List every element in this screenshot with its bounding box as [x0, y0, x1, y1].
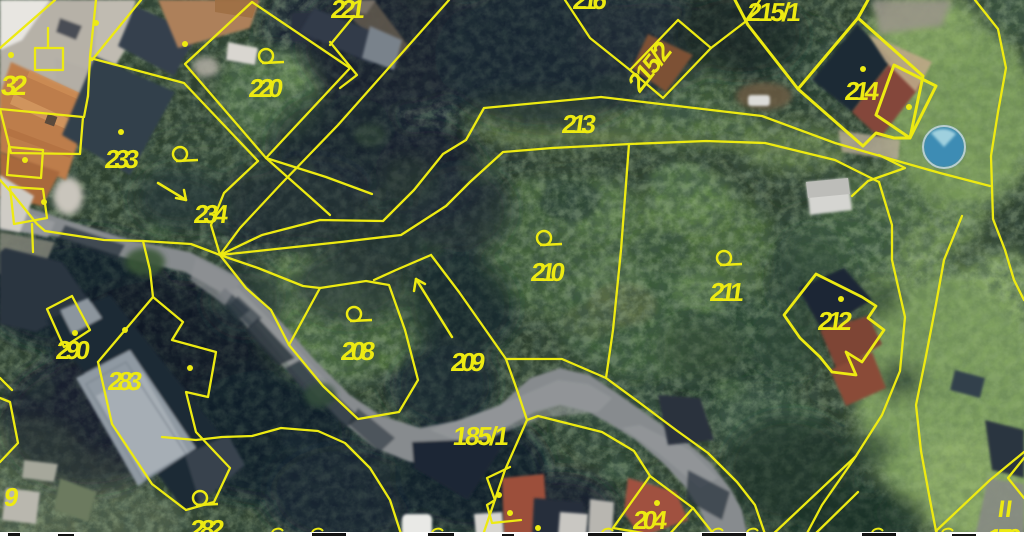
svg-text:283: 283: [106, 366, 144, 396]
svg-text:204: 204: [631, 505, 670, 535]
svg-text:212: 212: [816, 306, 854, 336]
svg-text:209: 209: [449, 347, 487, 377]
svg-text:214: 214: [843, 76, 882, 106]
svg-text:213: 213: [560, 109, 598, 139]
svg-text:220: 220: [247, 73, 285, 103]
svg-text:221: 221: [329, 0, 367, 24]
svg-text:208: 208: [339, 336, 377, 366]
svg-text:210: 210: [529, 257, 567, 287]
svg-text:290: 290: [54, 335, 92, 365]
svg-text:233: 233: [103, 144, 141, 174]
svg-text:216: 216: [571, 0, 609, 15]
svg-text:185/1: 185/1: [451, 421, 511, 451]
svg-text:215/1: 215/1: [745, 0, 803, 27]
svg-text:32: 32: [0, 70, 29, 101]
svg-text:234: 234: [192, 199, 231, 229]
svg-text:211: 211: [708, 277, 746, 307]
